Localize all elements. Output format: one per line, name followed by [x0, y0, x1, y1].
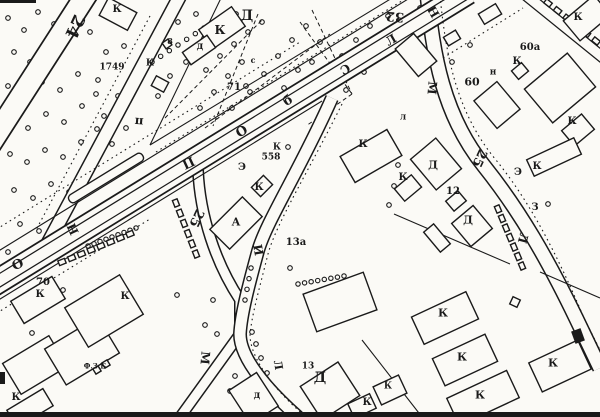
street-name-letter: б	[281, 93, 295, 109]
building-label: К	[35, 290, 44, 300]
building-label: К	[438, 308, 448, 319]
street-name-letter: Н	[65, 221, 81, 236]
building-label: К	[120, 292, 129, 302]
building-label: л	[400, 114, 406, 123]
street-name-letter: Н	[425, 4, 441, 20]
building-label: К	[254, 183, 263, 193]
building-label: К	[215, 24, 226, 36]
building-label: Д	[314, 371, 326, 385]
building-label: н	[490, 69, 497, 78]
street-name-letter: 25	[469, 147, 488, 169]
building-label: 60	[464, 77, 479, 88]
building-label: Д	[463, 215, 473, 226]
building-label: К	[548, 358, 558, 369]
building-label: К	[475, 390, 485, 401]
labels-layer: 24252532ОНПОбСЛНМЛИМЛпК1749КДКд8с71К558Э…	[0, 0, 600, 417]
building-label: З	[531, 203, 538, 213]
building-label: Э	[514, 168, 522, 178]
building-label: А	[232, 217, 241, 228]
building-label: д	[254, 391, 261, 401]
building-label: 60а	[520, 43, 540, 53]
street-name-letter: М	[198, 351, 211, 365]
building-label: К	[398, 173, 407, 183]
building-label: К	[384, 383, 392, 392]
building-label: д	[197, 42, 204, 52]
building-label: 12	[446, 187, 460, 197]
street-name-letter: И	[251, 243, 265, 256]
street-name-letter: п	[134, 116, 144, 129]
scanned-city-plan: 24252532ОНПОбСЛНМЛИМЛпК1749КДКд8с71К558Э…	[0, 0, 600, 417]
building-label: К	[532, 162, 541, 172]
street-name-letter: 24	[61, 12, 86, 41]
street-name-letter: Л	[516, 231, 530, 244]
street-name-letter: Л	[272, 359, 285, 370]
building-label: 1749	[99, 64, 124, 73]
street-name-letter: С	[338, 61, 352, 76]
street-name-letter: О	[10, 257, 26, 274]
street-name-letter: Л	[383, 32, 398, 48]
building-label: 8	[167, 37, 173, 45]
building-label: 70	[36, 278, 50, 288]
building-label: 558	[262, 154, 281, 163]
building-label: 13	[302, 363, 315, 372]
street-name-letter: О	[234, 124, 250, 141]
building-label: К	[567, 117, 576, 127]
building-label: К	[11, 393, 20, 403]
building-label: 71	[227, 83, 241, 93]
building-label: К	[146, 60, 154, 69]
building-label: К	[573, 13, 582, 23]
building-label: К	[362, 398, 371, 408]
street-name-letter: П	[180, 154, 197, 171]
building-label: К	[457, 352, 467, 363]
building-label: К	[358, 140, 367, 150]
building-label: с	[251, 56, 256, 64]
building-label: Э	[238, 163, 246, 173]
building-label: 13а	[286, 238, 306, 248]
building-label: Д	[241, 9, 253, 23]
building-label: К	[273, 144, 281, 153]
street-name-letter: 25	[186, 207, 205, 229]
street-name-letter: 32	[385, 9, 404, 24]
building-label: К	[512, 57, 521, 67]
building-label: К	[112, 5, 121, 15]
building-label: Д	[428, 160, 438, 171]
street-name-letter: М	[425, 81, 438, 95]
building-label: Ф.З.Б	[84, 363, 107, 370]
